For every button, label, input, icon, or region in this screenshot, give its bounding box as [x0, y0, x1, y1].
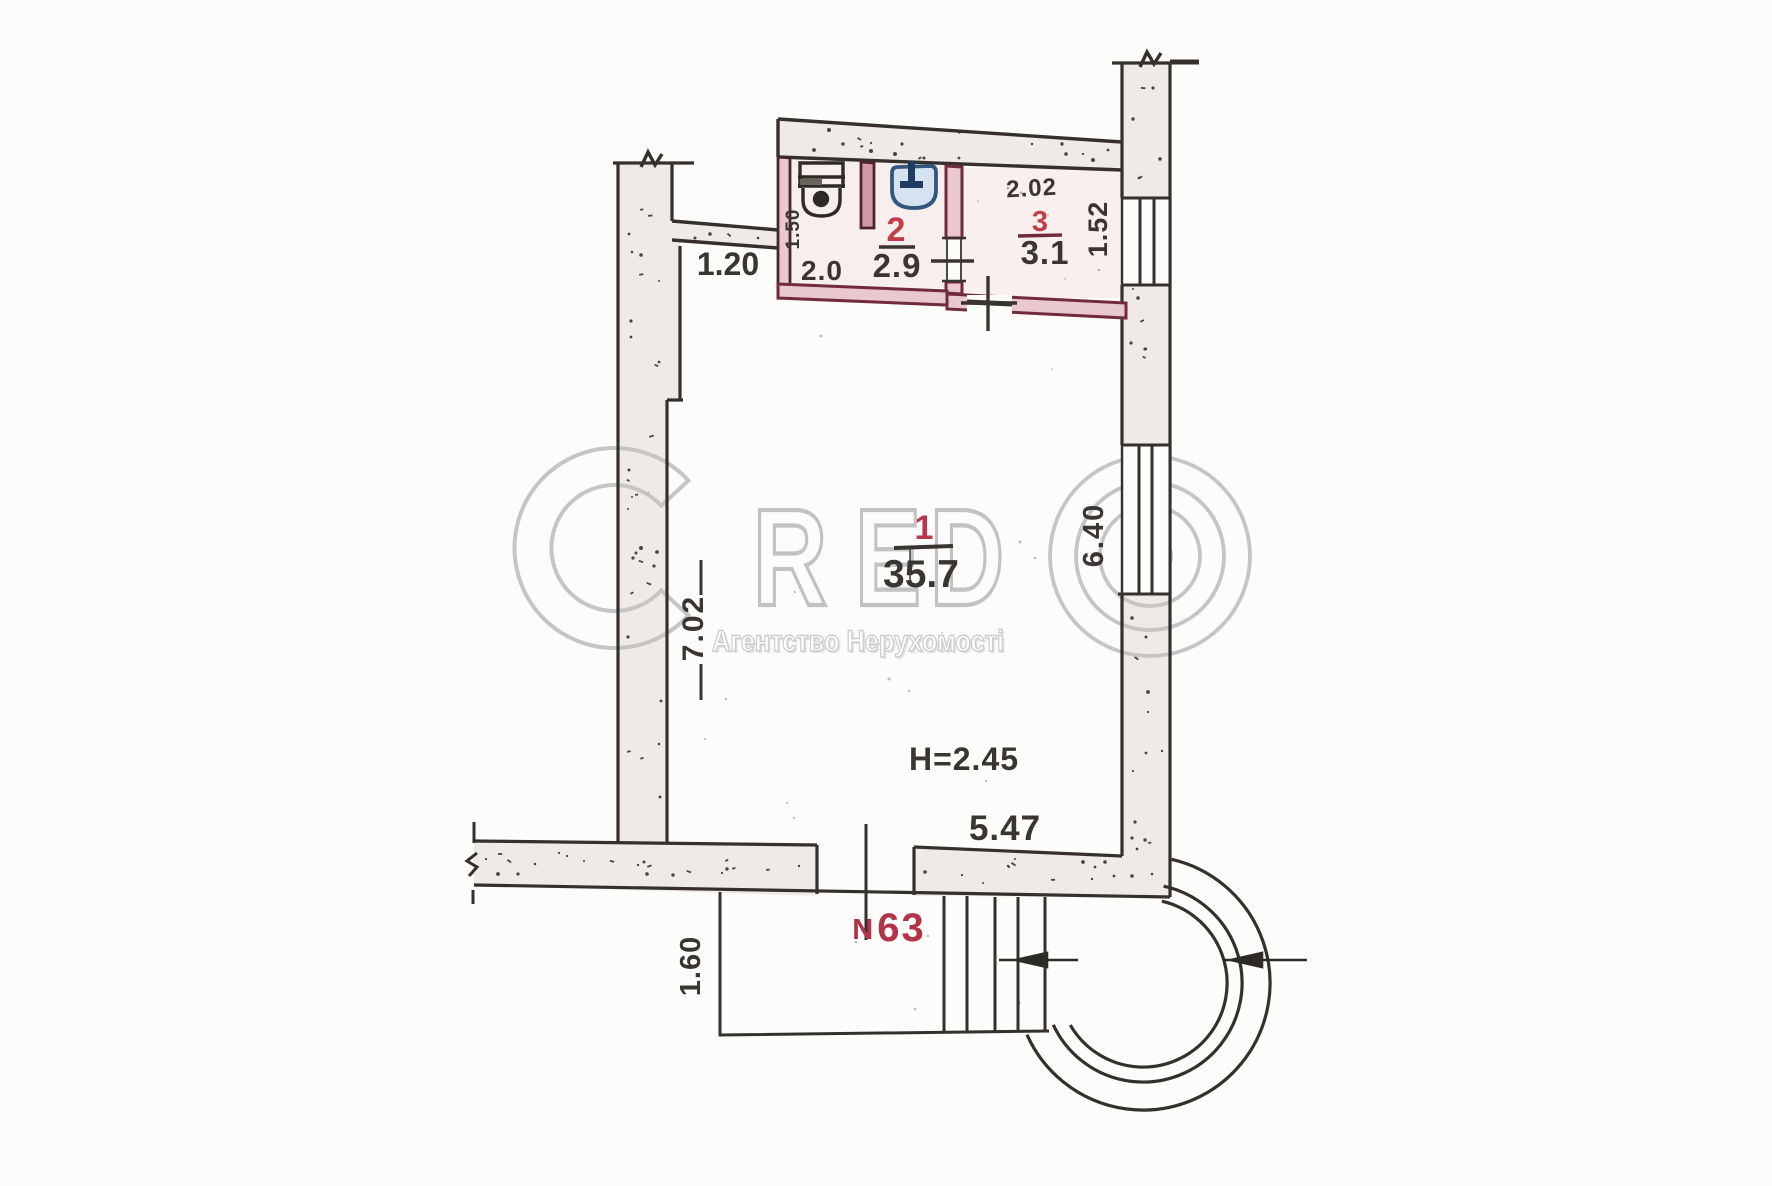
- svg-text:1.60: 1.60: [675, 936, 707, 996]
- svg-text:R: R: [753, 481, 828, 635]
- svg-text:1.50: 1.50: [783, 209, 804, 250]
- svg-text:2: 2: [887, 211, 906, 249]
- svg-text:Агентство Нерухомості: Агентство Нерухомості: [712, 625, 1004, 658]
- svg-text:7.02: 7.02: [677, 595, 710, 661]
- svg-text:H=2.45: H=2.45: [909, 741, 1019, 777]
- svg-text:2.0: 2.0: [801, 255, 843, 286]
- svg-text:1.52: 1.52: [1083, 201, 1113, 258]
- svg-text:5.47: 5.47: [969, 809, 1041, 848]
- svg-text:6.40: 6.40: [1078, 503, 1110, 567]
- svg-text:2.02: 2.02: [1006, 174, 1058, 204]
- svg-text:2.9: 2.9: [873, 247, 922, 284]
- svg-text:3.1: 3.1: [1021, 234, 1070, 271]
- svg-text:1: 1: [915, 509, 934, 547]
- svg-text:1.20: 1.20: [697, 246, 759, 282]
- svg-text:35.7: 35.7: [883, 553, 959, 596]
